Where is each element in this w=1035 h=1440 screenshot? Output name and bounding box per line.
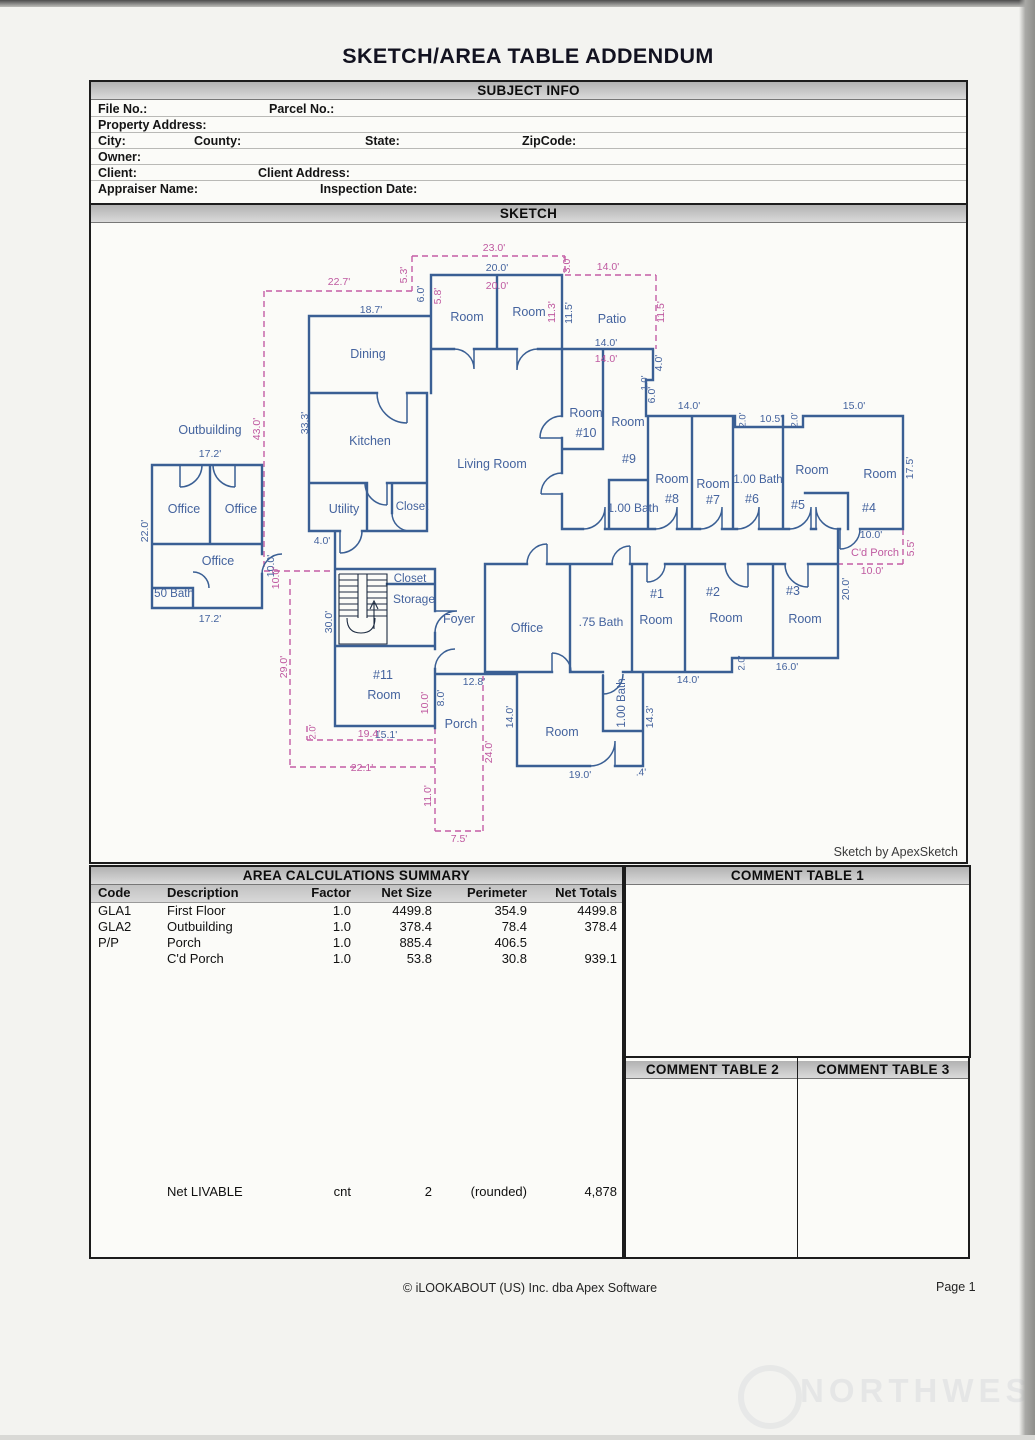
net-livable-row: Net LIVABLE cnt 2 (rounded) 4,878 bbox=[91, 1184, 622, 1200]
col-net-totals: Net Totals bbox=[527, 885, 617, 902]
form-row: City: County: State: ZipCode: bbox=[91, 132, 966, 149]
sketch-label: 19.0' bbox=[569, 769, 591, 781]
form-row: Owner: bbox=[91, 148, 966, 165]
owner-label: Owner: bbox=[98, 150, 141, 164]
sketch-label: 7.5' bbox=[451, 833, 468, 845]
cell-net-size: 378.4 bbox=[351, 919, 432, 935]
sketch-label: 6.0' bbox=[415, 286, 427, 303]
cell-perimeter: 30.8 bbox=[432, 951, 527, 967]
comment-table-1: COMMENT TABLE 1 bbox=[624, 865, 971, 1058]
comment-table-2-header: COMMENT TABLE 2 bbox=[626, 1061, 799, 1079]
sketch-label: 15.0' bbox=[843, 400, 865, 412]
cell-net-totals: 939.1 bbox=[527, 951, 617, 967]
col-description: Description bbox=[167, 885, 267, 902]
cell-code: GLA1 bbox=[91, 903, 167, 919]
footer-page-number: Page 1 bbox=[936, 1280, 976, 1294]
sketch-label: 14.0' bbox=[504, 706, 516, 728]
comment-table-1-body bbox=[626, 885, 969, 1056]
sketch-label: Office bbox=[202, 554, 234, 568]
mls-watermark: NORTHWEST bbox=[738, 1360, 1028, 1435]
form-row: File No.: Parcel No.: bbox=[91, 100, 966, 117]
sketch-label: 11.3' bbox=[546, 301, 558, 323]
sketch-label: 14.0' bbox=[597, 261, 619, 273]
sketch-label: Room bbox=[545, 725, 578, 739]
sketch-label: 22.1' bbox=[351, 762, 373, 774]
sketch-label: 29.0' bbox=[278, 656, 290, 678]
sketch-label: Office bbox=[168, 502, 200, 516]
sketch-label: Porch bbox=[445, 717, 478, 731]
porch-dashed-lines bbox=[264, 256, 903, 831]
sketch-label: C'd Porch bbox=[851, 547, 899, 559]
sketch-label: 22.7' bbox=[328, 276, 350, 288]
sketch-label: 10.0' bbox=[270, 567, 282, 589]
net-count-value: 2 bbox=[351, 1184, 432, 1200]
file-no-label: File No.: bbox=[98, 102, 147, 116]
col-factor: Factor bbox=[267, 885, 351, 902]
sketch-label: Utility bbox=[329, 502, 360, 516]
comment-table-2: COMMENT TABLE 2 bbox=[624, 1056, 801, 1259]
sketch-label: #1 bbox=[650, 587, 664, 601]
col-net-size: Net Size bbox=[351, 885, 432, 902]
table-row: GLA2 Outbuilding 1.0 378.4 78.4 378.4 bbox=[91, 919, 622, 935]
client-address-label: Client Address: bbox=[258, 166, 350, 180]
sketch-label: Patio bbox=[598, 312, 627, 326]
sketch-label: #6 bbox=[745, 492, 759, 506]
cell-description: Outbuilding bbox=[167, 919, 267, 935]
sketch-label: 14.0' bbox=[595, 337, 617, 349]
sketch-label: Room bbox=[788, 612, 821, 626]
sketch-label: 2.0' bbox=[737, 655, 748, 670]
sketch-label: 24.0' bbox=[483, 741, 495, 763]
floor-plan-sketch: OutbuildingOfficeOfficeOffice50 BathDini… bbox=[91, 223, 966, 861]
cell-code: P/P bbox=[91, 935, 167, 951]
sketch-label: Closet bbox=[394, 573, 427, 585]
client-label: Client: bbox=[98, 166, 137, 180]
sketch-label: Kitchen bbox=[349, 434, 391, 448]
sketch-label: Outbuilding bbox=[178, 423, 241, 437]
form-row: Appraiser Name: Inspection Date: bbox=[91, 180, 966, 199]
cell-description: C'd Porch bbox=[167, 951, 267, 967]
area-calculations-section: AREA CALCULATIONS SUMMARY Code Descripti… bbox=[89, 865, 624, 1259]
sketch-label: 1.00 Bath bbox=[733, 474, 782, 486]
sketch-label: Room bbox=[795, 463, 828, 477]
cell-factor: 1.0 bbox=[267, 919, 351, 935]
watermark-logo-icon bbox=[738, 1365, 802, 1429]
city-label: City: bbox=[98, 134, 126, 148]
sketch-label: Storage bbox=[393, 592, 435, 606]
sketch-label: 33.3' bbox=[299, 412, 311, 434]
table-row: P/P Porch 1.0 885.4 406.5 bbox=[91, 935, 622, 951]
cell-net-totals: 4499.8 bbox=[527, 903, 617, 919]
table-row: GLA1 First Floor 1.0 4499.8 354.9 4499.8 bbox=[91, 903, 622, 919]
sketch-label: Living Room bbox=[457, 457, 526, 471]
sketch-label: 2.0' bbox=[308, 724, 319, 739]
sketch-label: 1.00 Bath bbox=[616, 678, 628, 727]
sketch-label: Room bbox=[696, 477, 729, 491]
sketch-label: #9 bbox=[622, 452, 636, 466]
area-table-column-headers: Code Description Factor Net Size Perimet… bbox=[91, 885, 622, 903]
cell-factor: 1.0 bbox=[267, 903, 351, 919]
scan-edge-top bbox=[0, 0, 1035, 7]
sketch-label: 20.0' bbox=[486, 280, 508, 292]
sketch-label: 14.0' bbox=[595, 353, 617, 365]
state-label: State: bbox=[365, 134, 400, 148]
sketch-label: 11.5' bbox=[563, 302, 575, 324]
scanned-page: SKETCH/AREA TABLE ADDENDUM SUBJECT INFO … bbox=[0, 0, 1035, 1440]
sketch-label: #7 bbox=[706, 493, 720, 507]
cell-net-size: 4499.8 bbox=[351, 903, 432, 919]
sketch-label: 2.0' bbox=[738, 412, 749, 427]
sketch-label: 30.0' bbox=[323, 611, 335, 633]
table-row: C'd Porch 1.0 53.8 30.8 939.1 bbox=[91, 951, 622, 967]
sketch-label: 8.0' bbox=[435, 690, 447, 707]
sketch-label: 10.0' bbox=[419, 692, 431, 714]
sketch-label: 3.0' bbox=[561, 257, 573, 274]
area-calculations-header: AREA CALCULATIONS SUMMARY bbox=[91, 867, 622, 885]
sketch-credit: Sketch by ApexSketch bbox=[834, 845, 958, 859]
sketch-label: Office bbox=[511, 621, 543, 635]
sketch-label: #11 bbox=[373, 668, 393, 682]
cell-description: Porch bbox=[167, 935, 267, 951]
form-row: Property Address: bbox=[91, 116, 966, 133]
sketch-label: 50 Bath bbox=[154, 588, 194, 600]
sketch-label: Room bbox=[450, 310, 483, 324]
cell-factor: 1.0 bbox=[267, 935, 351, 951]
comment-table-3-header: COMMENT TABLE 3 bbox=[798, 1061, 968, 1079]
sketch-label: #4 bbox=[862, 501, 876, 515]
comment-table-1-header: COMMENT TABLE 1 bbox=[626, 867, 969, 885]
form-row: Client: Client Address: bbox=[91, 164, 966, 181]
sketch-label: Dining bbox=[350, 347, 385, 361]
sketch-label: 11.0' bbox=[422, 785, 434, 807]
sketch-label: Foyer bbox=[443, 612, 475, 626]
cell-perimeter: 354.9 bbox=[432, 903, 527, 919]
page-title: SKETCH/AREA TABLE ADDENDUM bbox=[178, 44, 878, 69]
zipcode-label: ZipCode: bbox=[522, 134, 576, 148]
sketch-label: Room bbox=[639, 613, 672, 627]
net-total-value: 4,878 bbox=[527, 1184, 617, 1200]
sketch-label: 10.5' bbox=[760, 413, 782, 425]
sketch-section: SKETCH OutbuildingOfficeOfficeOffice50 B… bbox=[89, 203, 968, 864]
sketch-label: Room bbox=[569, 406, 602, 420]
sketch-label: 4.0' bbox=[653, 355, 665, 372]
sketch-label: 17.2' bbox=[199, 613, 221, 625]
sketch-label: Office bbox=[225, 502, 257, 516]
sketch-label: 12.8' bbox=[463, 676, 485, 688]
sketch-label: Room bbox=[611, 415, 644, 429]
sketch-label: 14.0' bbox=[678, 400, 700, 412]
sketch-label: #2 bbox=[706, 585, 720, 599]
sketch-label: 11.5' bbox=[655, 301, 667, 323]
sketch-label: 17.5' bbox=[904, 457, 916, 479]
walls bbox=[152, 275, 903, 766]
sketch-label: 16.0' bbox=[776, 661, 798, 673]
appraiser-name-label: Appraiser Name: bbox=[98, 182, 198, 196]
cell-perimeter: 406.5 bbox=[432, 935, 527, 951]
sketch-label: 1.00 Bath bbox=[607, 501, 658, 515]
watermark-text: NORTHWEST bbox=[800, 1372, 1035, 1410]
sketch-label: 6.0' bbox=[646, 387, 658, 404]
sketch-label: Room bbox=[512, 305, 545, 319]
sketch-label: 22.0' bbox=[139, 520, 151, 542]
col-code: Code bbox=[91, 885, 167, 902]
net-livable-label: Net LIVABLE bbox=[167, 1184, 267, 1200]
subject-info-header: SUBJECT INFO bbox=[91, 82, 966, 100]
sketch-label: 10.0' bbox=[860, 529, 882, 541]
cell-code: GLA2 bbox=[91, 919, 167, 935]
sketch-label: 19.4' bbox=[358, 728, 380, 740]
cell-code bbox=[91, 951, 167, 967]
inspection-date-label: Inspection Date: bbox=[320, 182, 417, 196]
sketch-label: #3 bbox=[786, 584, 800, 598]
scan-edge-bottom bbox=[0, 1435, 1035, 1440]
sketch-label: Closet bbox=[396, 501, 429, 513]
cell-net-size: 53.8 bbox=[351, 951, 432, 967]
sketch-label: Room bbox=[367, 688, 400, 702]
sketch-label: #5 bbox=[791, 498, 805, 512]
cell-net-size: 885.4 bbox=[351, 935, 432, 951]
sketch-label: 5.5' bbox=[905, 540, 917, 557]
cell-factor: 1.0 bbox=[267, 951, 351, 967]
door-arcs bbox=[180, 349, 860, 766]
sketch-label: 14.3' bbox=[644, 706, 656, 728]
sketch-label: 18.7' bbox=[360, 304, 382, 316]
sketch-label: #10 bbox=[576, 426, 597, 440]
sketch-label: .75 Bath bbox=[579, 615, 624, 629]
cell-perimeter: 78.4 bbox=[432, 919, 527, 935]
cell-blank bbox=[91, 1184, 167, 1200]
sketch-header: SKETCH bbox=[91, 205, 966, 223]
sketch-label: 10.0' bbox=[861, 565, 883, 577]
sketch-label: 5.3' bbox=[398, 267, 410, 284]
scan-edge-right bbox=[1019, 0, 1035, 1440]
footer-copyright: © iLOOKABOUT (US) Inc. dba Apex Software bbox=[330, 1281, 730, 1295]
cell-description: First Floor bbox=[167, 903, 267, 919]
property-address-label: Property Address: bbox=[98, 118, 207, 132]
staircase bbox=[339, 574, 387, 644]
sketch-label: Room bbox=[863, 467, 896, 481]
sketch-label: .4' bbox=[636, 768, 646, 779]
sketch-label: 20.0' bbox=[840, 578, 852, 600]
sketch-label: Room bbox=[655, 472, 688, 486]
sketch-label: #8 bbox=[665, 492, 679, 506]
cell-net-totals bbox=[527, 935, 617, 951]
sketch-label: 20.0' bbox=[486, 262, 508, 274]
sketch-label: Room bbox=[709, 611, 742, 625]
net-cnt-label: cnt bbox=[267, 1184, 351, 1200]
parcel-no-label: Parcel No.: bbox=[269, 102, 334, 116]
comment-table-3: COMMENT TABLE 3 bbox=[797, 1056, 970, 1259]
subject-info-section: SUBJECT INFO File No.: Parcel No.: Prope… bbox=[89, 80, 968, 205]
sketch-label: 4.0' bbox=[314, 535, 331, 547]
cell-net-totals: 378.4 bbox=[527, 919, 617, 935]
sketch-label: 17.2' bbox=[199, 448, 221, 460]
sketch-label: 5.8' bbox=[432, 288, 444, 305]
col-perimeter: Perimeter bbox=[432, 885, 527, 902]
net-rounded-label: (rounded) bbox=[432, 1184, 527, 1200]
county-label: County: bbox=[194, 134, 241, 148]
sketch-label: 23.0' bbox=[483, 242, 505, 254]
sketch-label: 43.0' bbox=[251, 418, 263, 440]
sketch-label: 2.0' bbox=[790, 412, 801, 427]
sketch-label: 14.0' bbox=[677, 674, 699, 686]
